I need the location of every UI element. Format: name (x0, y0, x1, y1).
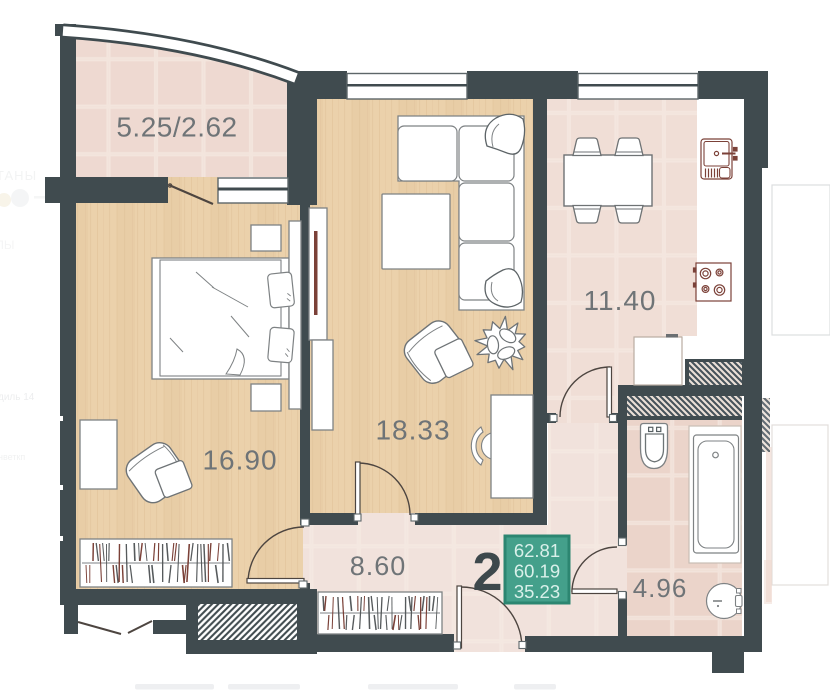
svg-text:16.90: 16.90 (202, 445, 277, 476)
svg-text:4.96: 4.96 (633, 573, 688, 603)
svg-text:2: 2 (472, 542, 502, 602)
svg-text:60.19: 60.19 (514, 561, 560, 582)
svg-text:62.81: 62.81 (514, 540, 560, 561)
svg-text:11.40: 11.40 (584, 285, 657, 316)
svg-text:нветкп: нветкп (0, 452, 25, 462)
svg-text:диль 14: диль 14 (0, 392, 35, 403)
svg-text:8.60: 8.60 (350, 551, 407, 581)
svg-text:5.25/2.62: 5.25/2.62 (116, 112, 237, 143)
svg-text:35.23: 35.23 (514, 581, 560, 602)
svg-text:18.33: 18.33 (375, 415, 450, 446)
svg-text:ЛЫ: ЛЫ (0, 238, 15, 252)
svg-text:ТАНЫ: ТАНЫ (0, 168, 37, 183)
